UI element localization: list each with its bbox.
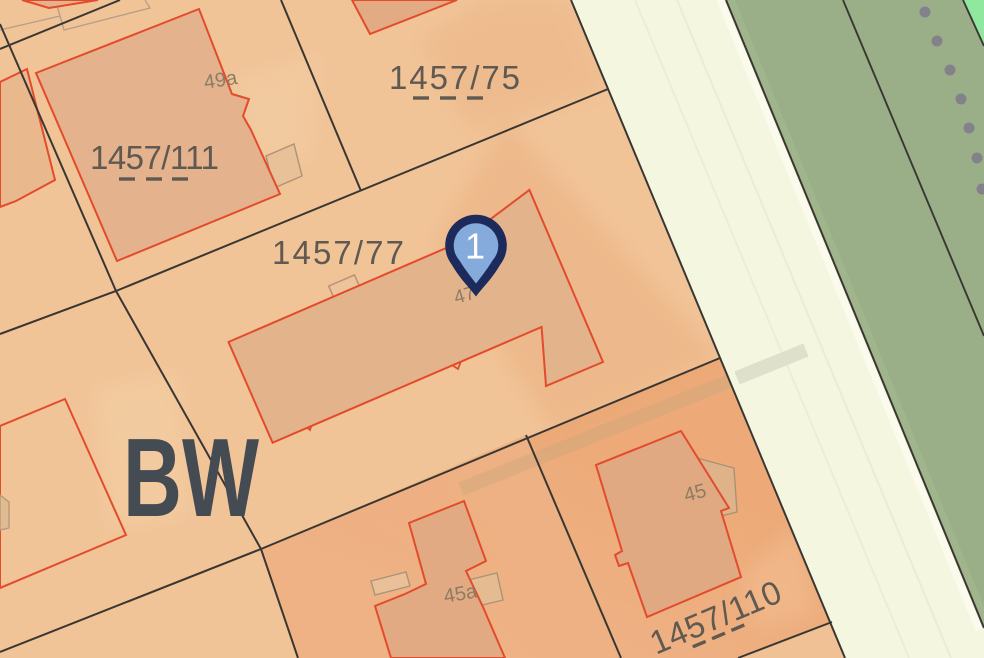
- svg-text:BW: BW: [123, 416, 259, 540]
- svg-text:1457/111: 1457/111: [90, 139, 219, 176]
- svg-text:1: 1: [465, 226, 485, 267]
